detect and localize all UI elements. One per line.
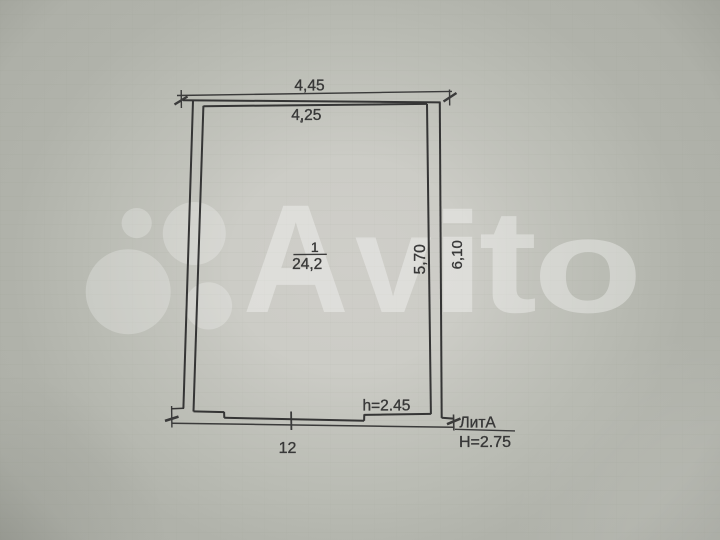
svg-text:1: 1 [311, 239, 319, 255]
svg-text:4,45: 4,45 [294, 77, 324, 94]
svg-text:t: t [479, 180, 537, 344]
svg-text:5,70: 5,70 [412, 244, 429, 275]
svg-text:h=2.45: h=2.45 [363, 398, 411, 415]
svg-text:12: 12 [279, 440, 297, 457]
svg-text:Н=2.75: Н=2.75 [459, 434, 511, 451]
svg-text:o: o [533, 190, 643, 341]
svg-text:24,2: 24,2 [292, 256, 322, 273]
svg-text:6,10: 6,10 [449, 240, 466, 269]
svg-text:4,25: 4,25 [291, 107, 321, 124]
svg-text:ЛитА: ЛитА [460, 415, 497, 432]
